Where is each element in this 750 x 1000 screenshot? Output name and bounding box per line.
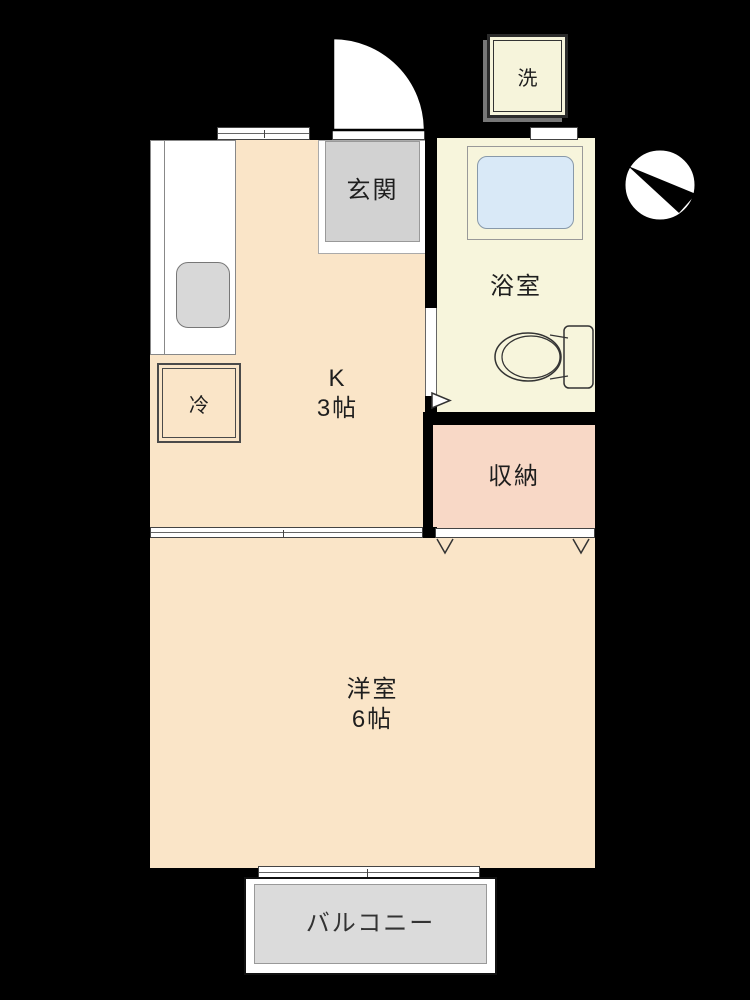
bathtub-inner xyxy=(477,156,574,229)
kitchen-sink xyxy=(176,262,230,328)
bathroom-window xyxy=(530,127,578,140)
partition-tick xyxy=(283,530,284,538)
washer-inner-border xyxy=(493,40,562,112)
floorplan: 冷 玄関 xyxy=(0,0,750,1000)
window-tick xyxy=(264,130,265,138)
wall-storage-left xyxy=(423,412,433,538)
western-size: 6帖 xyxy=(150,706,595,735)
balcony-window-mid-line xyxy=(259,872,479,873)
toilet-icon xyxy=(492,323,598,391)
fridge-inner-border xyxy=(162,368,236,438)
storage-label: 収納 xyxy=(433,463,595,492)
kitchen-size: 3帖 xyxy=(270,395,405,424)
balcony-label: バルコニー xyxy=(306,910,436,939)
bath-door-swing-icon xyxy=(430,391,454,411)
storage-door xyxy=(435,528,595,538)
entry-door-swing-icon xyxy=(328,28,430,134)
kitchen-label: K xyxy=(270,365,405,394)
balcony-floor: バルコニー xyxy=(254,884,487,964)
counter-edge-line xyxy=(164,141,165,354)
wall-bath-storage xyxy=(423,412,595,425)
kitchen-window xyxy=(217,127,310,140)
western-label: 洋室 xyxy=(150,676,595,705)
fridge-box: 冷 xyxy=(157,363,241,443)
room-genkan: 玄関 xyxy=(325,141,420,242)
wall-genkan-bath xyxy=(425,125,437,308)
closet-door-swing-icon xyxy=(572,538,590,555)
kitchen-western-partition xyxy=(150,527,423,538)
bathroom-label: 浴室 xyxy=(437,273,595,302)
closet-door-swing-icon xyxy=(436,538,454,555)
washer-box: 洗 xyxy=(487,34,568,118)
balcony-window-tick xyxy=(367,869,368,877)
bathroom-door-opening xyxy=(425,308,437,396)
north-compass-icon xyxy=(619,144,701,226)
partition-mid-line xyxy=(151,532,422,533)
genkan-label: 玄関 xyxy=(347,177,399,206)
